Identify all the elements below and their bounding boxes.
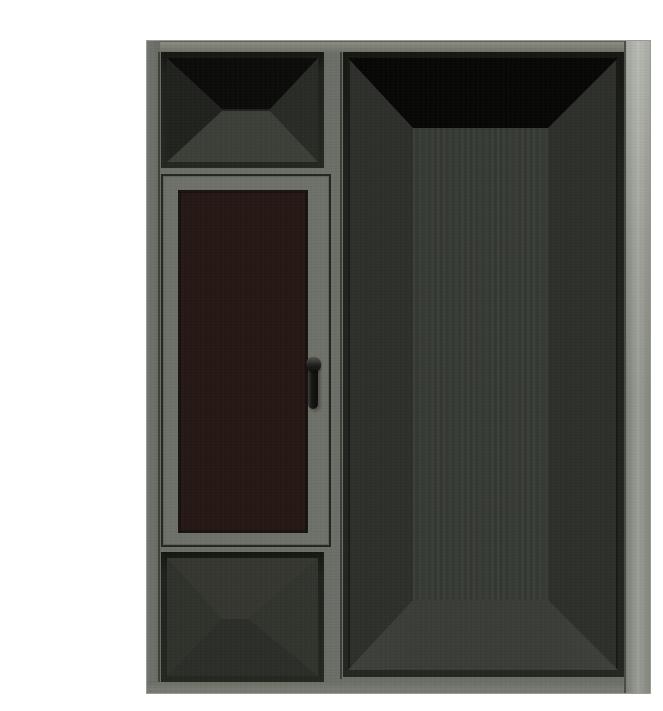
window-handle [306,357,324,411]
frame-right-face [624,41,650,693]
frame-bottom-face [147,681,650,693]
frame-inner-groove [158,52,160,682]
mullion-groove [340,52,342,679]
handle-cap [306,357,321,371]
window-door-product-render [0,0,663,711]
transom-interior [167,58,318,162]
bottom-panel-interior [167,558,318,676]
transom-opening [161,52,324,168]
casement-window [161,174,331,547]
frame-unit [147,41,650,693]
bottom-panel-opening [161,552,324,682]
door-interior [348,58,618,670]
door-back-wall [413,128,548,600]
casement-glass [178,190,308,533]
door-opening [343,52,624,677]
